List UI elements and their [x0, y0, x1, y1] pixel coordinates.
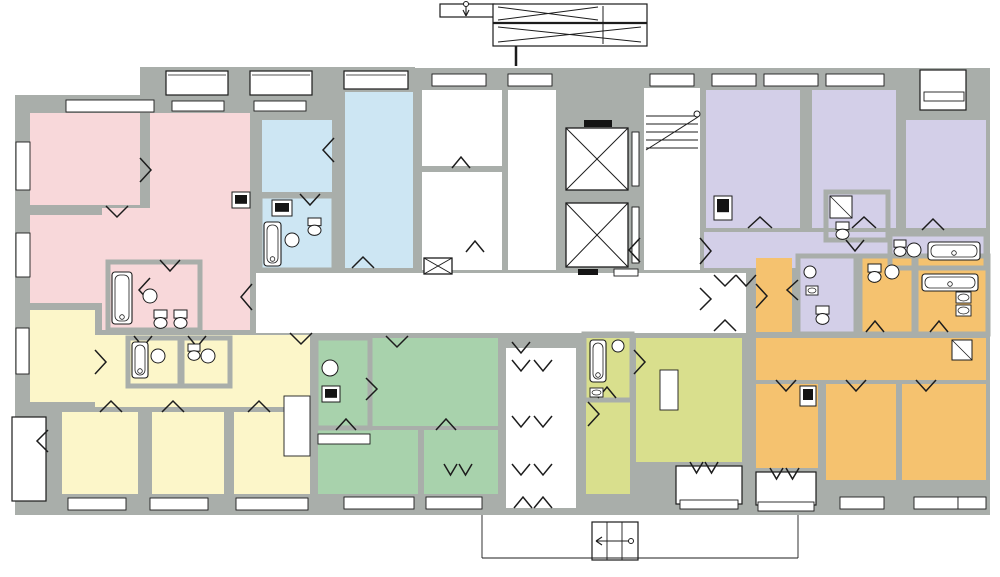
- balcony-outline: [12, 417, 46, 501]
- room-pink-2: [30, 215, 102, 303]
- floor-plan: [0, 0, 1000, 577]
- sink-icon: [907, 243, 921, 257]
- washer-drum: [275, 203, 289, 212]
- sink-icon: [612, 340, 624, 352]
- kitchen-counter: [318, 434, 370, 444]
- room-orange-1: [756, 258, 792, 332]
- corridor-area: [422, 90, 502, 166]
- room-lime-2: [586, 402, 630, 494]
- apartment-pink: [30, 113, 250, 330]
- sink-icon: [629, 539, 634, 544]
- window: [68, 498, 126, 510]
- room-lavender-3: [906, 120, 986, 228]
- sink-icon: [464, 2, 469, 7]
- window: [680, 500, 738, 509]
- window: [150, 498, 208, 510]
- apartment-green: [318, 338, 498, 494]
- toilet-icon: [308, 218, 321, 226]
- sink-icon: [804, 266, 816, 278]
- washer-drum: [803, 389, 813, 400]
- corridor-area: [422, 172, 502, 270]
- sink-icon: [143, 289, 157, 303]
- corridor-area: [506, 348, 576, 508]
- toilet-bowl: [836, 229, 849, 239]
- toilet-bowl: [816, 314, 829, 325]
- window: [16, 142, 30, 190]
- bathtub-icon: [264, 222, 281, 266]
- window: [614, 269, 638, 276]
- room-yellow-4: [152, 412, 224, 494]
- window: [16, 233, 30, 277]
- toilet-bowl: [868, 272, 881, 283]
- window: [840, 497, 884, 509]
- corridor-area: [644, 88, 700, 270]
- room-blue-3: [345, 92, 413, 268]
- sink-icon: [322, 360, 338, 376]
- window: [432, 74, 486, 86]
- bathtub-icon: [590, 340, 606, 382]
- window: [924, 92, 964, 101]
- window: [914, 497, 958, 509]
- window: [764, 74, 818, 86]
- corridor-area: [256, 273, 746, 333]
- dark-marker: [578, 269, 598, 275]
- sink-icon: [201, 349, 215, 363]
- window: [632, 132, 639, 186]
- dark-marker: [584, 120, 612, 127]
- room-green-4: [424, 430, 498, 494]
- bathtub-icon: [922, 274, 978, 291]
- toilet-icon: [154, 310, 167, 318]
- sink-icon: [285, 233, 299, 247]
- kitchen-counter: [660, 370, 678, 410]
- balcony-outline: [920, 70, 966, 110]
- bathtub-icon: [132, 342, 148, 378]
- toilet-icon: [174, 310, 187, 318]
- window: [826, 74, 884, 86]
- floor-plan-canvas: [0, 0, 1000, 577]
- washer-drum: [235, 195, 247, 204]
- balcony-outline: [344, 71, 408, 89]
- sink-icon: [151, 349, 165, 363]
- room-orange-6: [826, 384, 896, 480]
- room-blue-1: [262, 120, 332, 192]
- sink-icon: [885, 265, 899, 279]
- window: [712, 74, 756, 86]
- room-yellow-1: [30, 310, 95, 402]
- balcony-outline: [676, 466, 742, 504]
- toilet-icon: [816, 306, 829, 314]
- toilet-bowl: [174, 318, 187, 329]
- sink-icon: [694, 111, 700, 117]
- room-green-2: [372, 338, 498, 426]
- window: [958, 497, 986, 509]
- room-yellow-3: [62, 412, 138, 494]
- toilet-bowl: [188, 351, 200, 361]
- toilet-bowl: [894, 247, 906, 257]
- toilet-icon: [836, 222, 849, 230]
- room-lime-3: [636, 338, 742, 462]
- toilet-icon: [188, 344, 200, 351]
- window: [344, 497, 414, 509]
- window: [650, 74, 694, 86]
- washer-drum: [325, 389, 337, 398]
- plan-svg: [0, 0, 1000, 577]
- window: [758, 502, 814, 511]
- window: [254, 101, 306, 111]
- room-orange-7: [902, 384, 986, 480]
- washer-drum: [717, 199, 729, 212]
- window: [172, 101, 224, 111]
- window: [66, 100, 154, 112]
- toilet-icon: [894, 240, 906, 247]
- room-green-1: [318, 340, 368, 426]
- window: [16, 328, 29, 374]
- window: [236, 498, 308, 510]
- toilet-icon: [868, 264, 881, 272]
- toilet-bowl: [308, 225, 321, 235]
- window: [426, 497, 482, 509]
- kitchen-counter: [284, 396, 310, 456]
- corridor-area: [508, 90, 556, 270]
- balcony-outline: [756, 472, 816, 505]
- toilet-bowl: [154, 318, 167, 329]
- room-pink-1: [30, 113, 140, 205]
- window: [508, 74, 552, 86]
